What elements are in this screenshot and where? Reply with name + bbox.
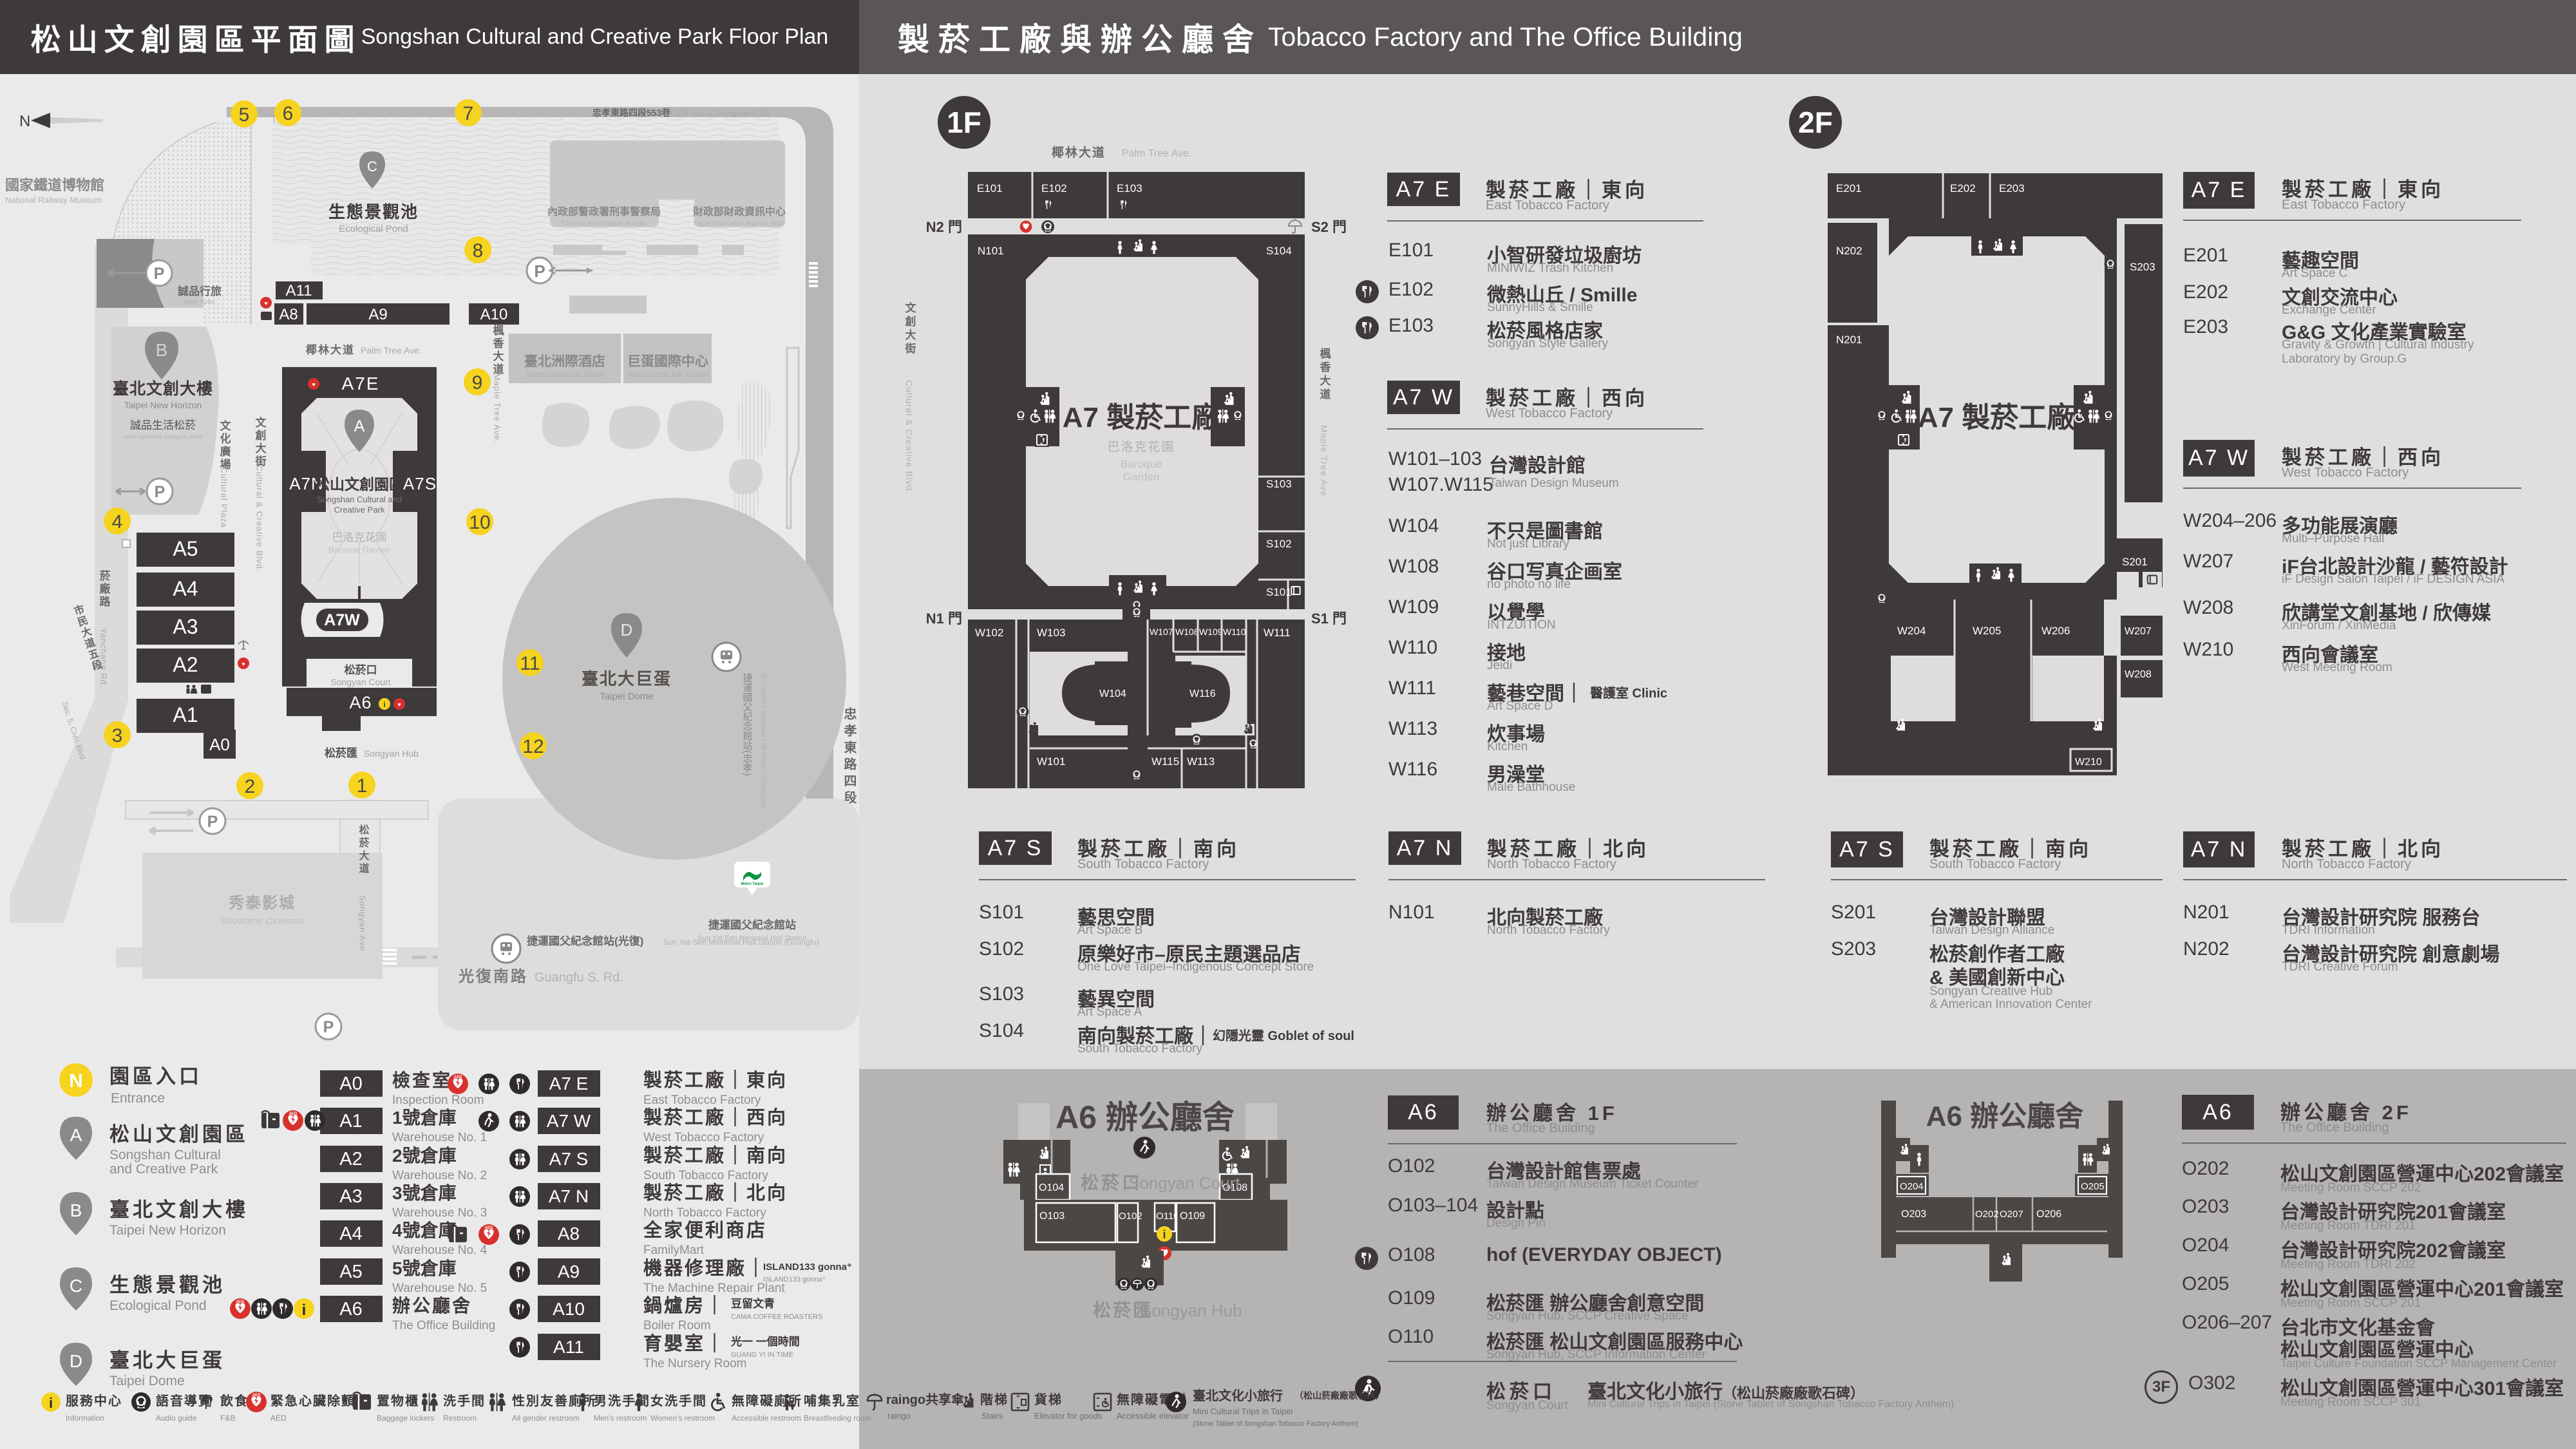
svg-text:臺北大巨蛋: 臺北大巨蛋	[109, 1349, 225, 1372]
svg-text:Songyan Court: Songyan Court	[1128, 1173, 1240, 1193]
svg-text:S104: S104	[1266, 245, 1292, 257]
svg-text:A2: A2	[173, 653, 198, 676]
svg-text:臺北文化小旅行: 臺北文化小旅行	[1193, 1388, 1283, 1403]
svg-text:♥: ♥	[312, 381, 315, 388]
svg-text:巴洛克花園: 巴洛克花園	[332, 531, 387, 544]
svg-text:A6: A6	[349, 693, 372, 712]
svg-text:W102: W102	[975, 627, 1003, 639]
svg-text:A7 S: A7 S	[549, 1149, 589, 1169]
svg-text:貨梯: 貨梯	[1034, 1392, 1063, 1407]
svg-text:D: D	[621, 620, 633, 639]
svg-text:O205: O205	[2081, 1181, 2105, 1192]
svg-text:S102: S102	[1266, 538, 1292, 550]
svg-text:Warehouse No. 5: Warehouse No. 5	[392, 1282, 487, 1295]
svg-text:Metro Taipei: Metro Taipei	[741, 882, 764, 886]
svg-text:W115: W115	[1151, 755, 1179, 768]
svg-text:忠孝東路四段553巷: 忠孝東路四段553巷	[592, 108, 671, 118]
svg-text:4: 4	[112, 511, 123, 533]
svg-text:(Stone Tablet of Songshan Toba: (Stone Tablet of Songshan Tobacco Factor…	[1193, 1420, 1358, 1428]
svg-text:E203: E203	[1999, 182, 2025, 194]
svg-text:W205: W205	[1973, 625, 2001, 637]
svg-text:A7 N: A7 N	[549, 1186, 589, 1206]
svg-text:O203: O203	[1901, 1209, 1926, 1220]
svg-text:Creative Park: Creative Park	[334, 505, 385, 515]
svg-text:Accessible restroom: Accessible restroom	[732, 1414, 801, 1423]
svg-text:松菸匯: 松菸匯	[325, 746, 357, 759]
svg-text:A1: A1	[173, 703, 198, 726]
svg-text:機器修理廠｜: 機器修理廠｜	[643, 1257, 767, 1279]
svg-text:O207: O207	[2000, 1209, 2023, 1220]
svg-text:巨蛋國際中心: 巨蛋國際中心	[627, 354, 708, 369]
svg-text:A6 辦公廳舍: A6 辦公廳舍	[1056, 1099, 1235, 1135]
svg-text:Taipei New Horizon: Taipei New Horizon	[124, 400, 202, 410]
svg-text:Songyan Ave.: Songyan Ave.	[358, 895, 368, 954]
svg-text:N: N	[69, 1070, 83, 1092]
svg-text:N101: N101	[978, 245, 1004, 257]
svg-text:W204: W204	[1897, 625, 1926, 637]
svg-text:N201: N201	[1836, 334, 1862, 346]
svg-text:Inspection Room: Inspection Room	[392, 1094, 484, 1107]
svg-text:A9: A9	[368, 306, 387, 323]
svg-text:i: i	[1162, 1228, 1166, 1241]
svg-text:CAMA COFFEE ROASTERS: CAMA COFFEE ROASTERS	[731, 1313, 822, 1321]
svg-text:A10: A10	[553, 1299, 585, 1319]
svg-text:The Machine Repair Plant: The Machine Repair Plant	[643, 1282, 785, 1295]
svg-text:製菸工廠｜北向: 製菸工廠｜北向	[643, 1182, 788, 1204]
svg-text:哺集乳室: 哺集乳室	[804, 1393, 860, 1408]
svg-text:A11: A11	[553, 1337, 584, 1357]
svg-text:♥: ♥	[241, 661, 245, 667]
svg-text:1F: 1F	[947, 106, 981, 139]
svg-text:Cultural & Creative Blvd.: Cultural & Creative Blvd.	[904, 380, 914, 495]
svg-text:ISLAND133 gonna⁺: ISLAND133 gonna⁺	[763, 1262, 852, 1273]
svg-text:Mini Cultural Trips in Taipei: Mini Cultural Trips in Taipei	[1193, 1406, 1293, 1416]
svg-text:The Nursery Room: The Nursery Room	[643, 1357, 747, 1370]
svg-text:誠品行旅: 誠品行旅	[178, 285, 222, 298]
svg-text:Fiscal Information Agency, MOF: Fiscal Information Agency, MOF	[694, 220, 785, 227]
svg-text:A2: A2	[339, 1149, 362, 1170]
svg-text:文創大街: 文創大街	[254, 416, 267, 468]
svg-text:文創大街: 文創大街	[904, 301, 917, 356]
svg-text:P: P	[155, 483, 166, 501]
svg-text:製菸工廠｜西向: 製菸工廠｜西向	[643, 1106, 788, 1128]
svg-text:Taipei New Horizon: Taipei New Horizon	[109, 1223, 226, 1238]
svg-text:捷運國父紀念館站(忠孝): 捷運國父紀念館站(忠孝)	[742, 673, 753, 776]
svg-text:raingo共享傘: raingo共享傘	[886, 1392, 965, 1407]
svg-text:3: 3	[112, 725, 123, 746]
svg-text:A7W: A7W	[324, 611, 360, 629]
svg-text:S201: S201	[2122, 556, 2148, 568]
svg-text:1號倉庫: 1號倉庫	[392, 1107, 457, 1128]
svg-text:N: N	[19, 113, 30, 130]
svg-text:捷運國父紀念館站: 捷運國父紀念館站	[708, 918, 796, 931]
svg-text:巴洛克花園: 巴洛克花園	[1107, 440, 1175, 454]
svg-text:O202: O202	[1975, 1209, 1999, 1220]
svg-text:N2 門: N2 門	[926, 219, 962, 235]
svg-text:E101: E101	[977, 182, 1003, 194]
svg-text:E103: E103	[1117, 182, 1142, 194]
svg-text:光一 一個時間: 光一 一個時間	[730, 1335, 800, 1348]
svg-text:9: 9	[472, 372, 483, 393]
svg-text:生態景觀池: 生態景觀池	[109, 1274, 225, 1296]
svg-text:Information: Information	[66, 1414, 104, 1423]
svg-text:AED: AED	[270, 1414, 287, 1423]
svg-text:鍋爐房｜: 鍋爐房｜	[643, 1294, 726, 1316]
svg-text:S2 門: S2 門	[1311, 219, 1347, 235]
svg-text:Baroque: Baroque	[1121, 458, 1162, 470]
svg-text:秀泰影城: 秀泰影城	[228, 894, 296, 912]
svg-text:5號倉庫: 5號倉庫	[392, 1258, 457, 1278]
svg-text:女洗手間: 女洗手間	[650, 1393, 707, 1408]
svg-text:W107: W107	[1150, 627, 1173, 637]
svg-text:A5: A5	[173, 537, 198, 560]
svg-text:Baroque Garden: Baroque Garden	[328, 545, 390, 554]
svg-text:W113: W113	[1187, 755, 1215, 768]
svg-text:P: P	[534, 261, 545, 281]
svg-text:The Office Building: The Office Building	[392, 1319, 495, 1332]
svg-text:1: 1	[357, 775, 368, 797]
svg-text:W108: W108	[1175, 627, 1199, 637]
svg-text:National Railway Museum: National Railway Museum	[5, 195, 102, 205]
svg-text:A7E: A7E	[342, 374, 380, 393]
svg-text:Cultural & Creative Blvd.: Cultural & Creative Blvd.	[255, 465, 265, 573]
svg-text:S103: S103	[1266, 478, 1292, 490]
svg-text:楓香大道: 楓香大道	[1318, 347, 1331, 402]
svg-text:Songshan Cultural: Songshan Cultural	[109, 1148, 221, 1162]
svg-text:Restroom: Restroom	[443, 1414, 477, 1423]
svg-text:Criminal Investigation Bureau: Criminal Investigation Bureau	[562, 220, 647, 227]
svg-text:（松山菸廠廠歌石碑）: （松山菸廠廠歌石碑）	[1294, 1390, 1385, 1401]
svg-text:West Tobacco Factory: West Tobacco Factory	[643, 1131, 764, 1144]
svg-text:A11: A11	[286, 282, 312, 299]
svg-text:育嬰室｜: 育嬰室｜	[643, 1332, 726, 1354]
svg-text:S203: S203	[2130, 261, 2155, 273]
svg-text:捷運國父紀念館站(光復): 捷運國父紀念館站(光復)	[527, 934, 643, 947]
svg-text:All gender restroom: All gender restroom	[512, 1414, 580, 1423]
svg-text:椰林大道: 椰林大道	[306, 343, 355, 356]
svg-text:Warehouse No. 2: Warehouse No. 2	[392, 1169, 487, 1182]
svg-text:C: C	[367, 158, 377, 175]
svg-text:置物櫃: 置物櫃	[377, 1393, 419, 1408]
svg-text:S1 門: S1 門	[1311, 611, 1347, 627]
svg-text:3號倉庫: 3號倉庫	[392, 1182, 457, 1203]
svg-text:O102: O102	[1119, 1211, 1142, 1222]
svg-text:菸廠路: 菸廠路	[98, 570, 111, 609]
svg-text:E202: E202	[1950, 182, 1976, 194]
svg-text:松山文創園區: 松山文創園區	[109, 1123, 249, 1146]
svg-text:W210: W210	[2075, 757, 2102, 768]
svg-text:A4: A4	[339, 1224, 362, 1244]
svg-text:Maple Tree Ave.: Maple Tree Ave.	[1319, 425, 1329, 500]
svg-text:楓香大道: 楓香大道	[491, 324, 504, 376]
svg-text:4號倉庫: 4號倉庫	[392, 1220, 457, 1240]
svg-text:A7S: A7S	[403, 474, 437, 493]
svg-text:Audio guide: Audio guide	[156, 1414, 197, 1423]
svg-text:Songyan Court: Songyan Court	[330, 677, 391, 687]
svg-text:A7 W: A7 W	[547, 1111, 591, 1131]
svg-text:O204: O204	[1900, 1181, 1924, 1192]
svg-text:製菸工廠｜南向: 製菸工廠｜南向	[643, 1144, 788, 1166]
svg-text:男洗手間: 男洗手間	[594, 1393, 650, 1408]
svg-text:eslite spectrum Songyan Store: eslite spectrum Songyan Store	[124, 433, 203, 440]
svg-text:Ecological Pond: Ecological Pond	[339, 223, 408, 234]
svg-text:Maple Tree Ave.: Maple Tree Ave.	[493, 374, 502, 444]
svg-text:文化廣場: 文化廣場	[218, 419, 231, 471]
svg-text:生態景觀池: 生態景觀池	[328, 202, 419, 222]
svg-text:W207: W207	[2125, 626, 2152, 637]
svg-text:12: 12	[522, 736, 544, 757]
svg-text:O110: O110	[1156, 1211, 1179, 1222]
svg-text:Garden: Garden	[1123, 471, 1160, 483]
svg-text:A5: A5	[339, 1262, 362, 1282]
svg-text:A8: A8	[558, 1224, 580, 1244]
svg-text:A6: A6	[339, 1299, 362, 1320]
svg-text:i: i	[383, 700, 385, 709]
svg-text:Showtime Cinemas: Showtime Cinemas	[220, 916, 303, 927]
svg-text:Ln. 553, Sec. 4, Zhongxiao E.: Ln. 553, Sec. 4, Zhongxiao E. Rd.	[665, 110, 771, 118]
svg-text:飲食: 飲食	[220, 1393, 249, 1408]
svg-text:Guangfu S. Rd.: Guangfu S. Rd.	[535, 971, 623, 985]
svg-text:Taipei Dome Intl. Center: Taipei Dome Intl. Center	[627, 370, 710, 379]
svg-text:Warehouse No. 3: Warehouse No. 3	[392, 1206, 487, 1220]
svg-text:2號倉庫: 2號倉庫	[392, 1145, 457, 1166]
svg-text:A7 製菸工廠: A7 製菸工廠	[1918, 401, 2075, 433]
svg-text:財政部財政資訊中心: 財政部財政資訊中心	[693, 205, 786, 218]
svg-text:Boiler Room: Boiler Room	[643, 1319, 711, 1332]
svg-text:全家便利商店: 全家便利商店	[643, 1219, 767, 1241]
svg-text:A0: A0	[209, 735, 230, 754]
svg-text:Songyan Hub: Songyan Hub	[364, 748, 419, 759]
svg-text:服務中心: 服務中心	[66, 1393, 122, 1408]
svg-text:6: 6	[283, 103, 294, 124]
svg-text:W110: W110	[1223, 627, 1246, 637]
svg-text:階梯: 階梯	[980, 1392, 1009, 1407]
svg-text:Taipei Dome: Taipei Dome	[600, 691, 653, 702]
svg-text:O109: O109	[1180, 1211, 1205, 1222]
svg-text:A8: A8	[279, 306, 298, 323]
svg-text:Songyan Hub: Songyan Hub	[1141, 1301, 1242, 1320]
svg-text:P: P	[154, 265, 165, 283]
svg-text:Palm Tree Ave.: Palm Tree Ave.	[1122, 148, 1191, 159]
svg-text:F&B: F&B	[220, 1414, 235, 1423]
svg-text:2: 2	[245, 776, 256, 797]
svg-text:N1 門: N1 門	[926, 611, 962, 627]
svg-text:W104: W104	[1099, 688, 1126, 699]
svg-text:W206: W206	[2041, 625, 2070, 637]
svg-text:W101: W101	[1037, 755, 1065, 768]
svg-text:Accessible elevator: Accessible elevator	[1117, 1411, 1189, 1421]
svg-text:i: i	[49, 1395, 53, 1411]
svg-text:Ecological Pond: Ecological Pond	[109, 1298, 207, 1313]
svg-text:Yanchang Rd.: Yanchang Rd.	[99, 628, 109, 688]
svg-text:A9: A9	[558, 1262, 580, 1282]
svg-text:8: 8	[473, 240, 484, 261]
svg-text:臺北文創大樓: 臺北文創大樓	[109, 1198, 249, 1221]
svg-text:Warehouse No. 4: Warehouse No. 4	[392, 1244, 488, 1257]
svg-text:i: i	[302, 1302, 307, 1319]
svg-text:Stairs: Stairs	[981, 1411, 1003, 1421]
svg-text:FamilyMart: FamilyMart	[643, 1244, 705, 1257]
svg-text:檢查室: 檢查室	[392, 1070, 452, 1090]
svg-text:A4: A4	[173, 577, 198, 600]
svg-text:2F: 2F	[1798, 106, 1833, 139]
svg-text:椰林大道: 椰林大道	[1052, 145, 1106, 160]
svg-text:Entrance: Entrance	[111, 1091, 165, 1106]
svg-text:A7 製菸工廠: A7 製菸工廠	[1063, 401, 1220, 433]
svg-text:臺北洲際酒店: 臺北洲際酒店	[524, 354, 605, 369]
svg-text:國家鐵道博物館: 國家鐵道博物館	[5, 177, 104, 193]
svg-text:誠品生活松菸: 誠品生活松菸	[130, 419, 196, 431]
svg-text:W103: W103	[1037, 627, 1065, 639]
svg-text:Sun Yat-Sen Memorial Hall Stat: Sun Yat-Sen Memorial Hall Station	[698, 934, 807, 942]
svg-text:Women's restroom: Women's restroom	[650, 1414, 715, 1423]
svg-text:臺北大巨蛋: 臺北大巨蛋	[582, 669, 672, 688]
svg-text:South Tobacco Factory: South Tobacco Factory	[643, 1169, 768, 1182]
svg-text:園區入口: 園區入口	[109, 1065, 202, 1088]
svg-text:North Tobacco Factory: North Tobacco Factory	[643, 1206, 766, 1220]
svg-text:辦公廳舍: 辦公廳舍	[392, 1295, 472, 1316]
svg-text:Men's restroom: Men's restroom	[594, 1414, 647, 1423]
svg-text:Cultural Plaza: Cultural Plaza	[220, 467, 229, 528]
svg-text:Elevator for goods: Elevator for goods	[1034, 1411, 1103, 1421]
svg-text:A10: A10	[480, 306, 508, 323]
svg-text:W109: W109	[1199, 627, 1223, 637]
svg-text:N202: N202	[1836, 245, 1862, 257]
svg-text:Warehouse No. 1: Warehouse No. 1	[392, 1131, 487, 1144]
svg-text:A6 辦公廳舍: A6 辦公廳舍	[1926, 1101, 2083, 1132]
svg-text:Palm Tree Ave.: Palm Tree Ave.	[361, 345, 422, 355]
svg-text:P: P	[207, 813, 218, 831]
svg-text:A3: A3	[173, 615, 198, 638]
svg-text:Songshan Cultural and: Songshan Cultural and	[317, 495, 402, 504]
svg-text:光復南路: 光復南路	[458, 967, 528, 985]
svg-text:W111: W111	[1264, 627, 1291, 639]
svg-text:松菸口: 松菸口	[345, 663, 377, 676]
svg-text:O104: O104	[1039, 1182, 1064, 1193]
svg-text:S101: S101	[1266, 586, 1292, 598]
svg-text:10: 10	[469, 512, 490, 533]
svg-text:eslite hotel: eslite hotel	[184, 299, 214, 306]
svg-text:♥: ♥	[397, 701, 401, 708]
svg-text:D: D	[70, 1351, 82, 1371]
svg-text:W116: W116	[1189, 688, 1216, 699]
svg-text:A3: A3	[339, 1186, 362, 1207]
svg-text:松山文創園區: 松山文創園區	[315, 476, 404, 493]
svg-text:raingo: raingo	[887, 1411, 911, 1421]
svg-text:Baggage lockers: Baggage lockers	[377, 1414, 434, 1423]
svg-text:內政部警政署刑事警察局: 內政部警政署刑事警察局	[547, 205, 661, 218]
svg-text:C: C	[70, 1276, 82, 1296]
svg-text:A7 E: A7 E	[549, 1074, 589, 1094]
svg-text:忠孝東路四段: 忠孝東路四段	[842, 706, 857, 808]
svg-text:InterContinental Taipei: InterContinental Taipei	[526, 370, 603, 379]
svg-text:B: B	[70, 1200, 82, 1220]
svg-text:B: B	[156, 340, 168, 360]
svg-text:E201: E201	[1836, 182, 1862, 194]
svg-text:5: 5	[239, 104, 250, 126]
svg-text:Sun Yat-Sen Memorial Hall Stat: Sun Yat-Sen Memorial Hall Station (Zhong…	[760, 673, 767, 808]
svg-text:O103: O103	[1039, 1211, 1065, 1222]
svg-text:豆留文青: 豆留文青	[731, 1297, 775, 1310]
svg-text:and Creative Park: and Creative Park	[109, 1162, 218, 1177]
svg-text:Taipei Dome: Taipei Dome	[109, 1374, 185, 1388]
svg-text:A: A	[70, 1125, 82, 1145]
svg-text:East Tobacco Factory: East Tobacco Factory	[643, 1094, 761, 1107]
svg-text:臺北文創大樓: 臺北文創大樓	[113, 379, 213, 398]
svg-text:♥: ♥	[264, 300, 267, 307]
svg-text:A1: A1	[339, 1111, 362, 1132]
svg-text:O206: O206	[2036, 1209, 2061, 1220]
svg-text:E102: E102	[1041, 182, 1067, 194]
svg-text:A0: A0	[339, 1074, 362, 1094]
svg-text:A: A	[354, 417, 365, 435]
svg-text:製菸工廠｜東向: 製菸工廠｜東向	[643, 1069, 788, 1091]
svg-text:松菸大道: 松菸大道	[357, 824, 370, 876]
svg-text:11: 11	[520, 653, 540, 674]
svg-text:W208: W208	[2125, 669, 2152, 680]
svg-text:洗手間: 洗手間	[443, 1393, 486, 1408]
svg-text:7: 7	[463, 103, 474, 124]
